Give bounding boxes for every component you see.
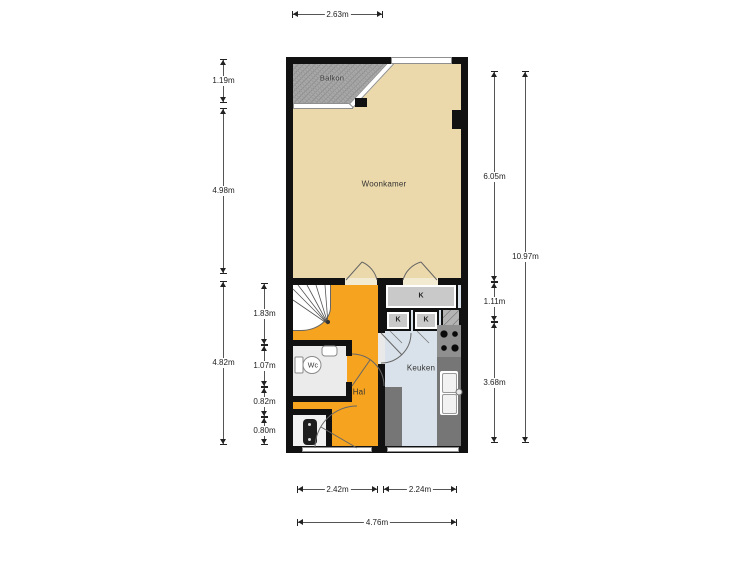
- dim-woonkamer-left-height-label: 4.98m: [210, 186, 236, 196]
- sink-basin-bottom: [442, 394, 457, 414]
- counter-left: [385, 387, 402, 446]
- dim-keuken-height-label: 3.68m: [481, 378, 507, 388]
- entrance-door-threshold: [302, 447, 372, 452]
- dim-total-width-label: 4.76m: [364, 518, 390, 528]
- dim-balkon-width: 2.63m: [292, 14, 383, 15]
- dim-meter-closet-height-label: 0.80m: [251, 426, 277, 436]
- dim-closet-row-height-label: 1.11m: [482, 297, 508, 307]
- meter-closet-wall-right: [326, 409, 332, 446]
- dim-hal-segment: 0.82m: [264, 387, 265, 417]
- dim-lower-left-height: 4.82m: [223, 281, 224, 445]
- label-closet-small-left: K: [395, 317, 400, 324]
- door-opening-keuken: [378, 333, 385, 364]
- floorplan-canvas: Balkon Woonkamer Hal Wc Keuken K K K 2.6…: [0, 0, 750, 563]
- label-woonkamer: Woonkamer: [362, 180, 407, 189]
- wc-wall-top: [291, 340, 352, 346]
- wc-wall-bottom: [291, 396, 352, 402]
- dim-keuken-width-label: 2.24m: [407, 485, 433, 495]
- label-hal: Hal: [353, 388, 366, 397]
- dim-total-height: 10.97m: [525, 71, 526, 443]
- dim-balkon-depth: 1.19m: [223, 59, 224, 103]
- label-keuken: Keuken: [407, 364, 435, 373]
- kitchen-sink-icon: [439, 370, 459, 416]
- dim-balkon-depth-label: 1.19m: [210, 76, 236, 86]
- dim-total-height-label: 10.97m: [510, 252, 541, 262]
- wall-left: [286, 57, 293, 453]
- dim-keuken-width: 2.24m: [383, 489, 457, 490]
- label-wc: Wc: [308, 363, 319, 370]
- balkon-window-bottom: [293, 103, 353, 109]
- balkon-corner-post: [355, 98, 367, 107]
- wall-top-right-corner: [452, 57, 468, 64]
- dim-wc-height: 1.07m: [264, 345, 265, 387]
- wall-pillar-right: [452, 110, 461, 129]
- woonkamer-window-top: [391, 57, 452, 64]
- label-closet-small-right: K: [423, 317, 428, 324]
- door-opening-woonkamer-left: [345, 278, 377, 285]
- wall-hal-keuken: [378, 285, 385, 446]
- dim-hal-segment-label: 0.82m: [251, 397, 277, 407]
- label-balkon: Balkon: [320, 74, 344, 83]
- wall-woonkamer-hal: [286, 278, 468, 285]
- dim-woonkamer-right-height-label: 6.05m: [481, 172, 507, 182]
- dim-wc-height-label: 1.07m: [251, 361, 277, 371]
- dim-balkon-width-label: 2.63m: [324, 10, 350, 20]
- boiler-icon: [303, 419, 317, 445]
- room-wc-floor: [293, 345, 347, 397]
- dim-keuken-height: 3.68m: [494, 322, 495, 443]
- dim-stairs-height: 1.83m: [264, 283, 265, 345]
- dim-total-width: 4.76m: [297, 522, 457, 523]
- dim-woonkamer-right-height: 6.05m: [494, 71, 495, 282]
- dim-hal-width-label: 2.42m: [324, 485, 350, 495]
- wc-wall-right-upper: [346, 340, 352, 356]
- keuken-window-bottom: [387, 447, 459, 452]
- door-opening-woonkamer-right: [403, 278, 438, 285]
- dim-meter-closet-height: 0.80m: [264, 417, 265, 445]
- dim-hal-width: 2.42m: [297, 489, 378, 490]
- dim-lower-left-height-label: 4.82m: [210, 358, 236, 368]
- sink-basin-top: [442, 373, 457, 393]
- dim-woonkamer-left-height: 4.98m: [223, 108, 224, 274]
- stove-icon: [437, 325, 461, 357]
- dim-closet-row-height: 1.11m: [494, 282, 495, 322]
- wall-top: [286, 57, 391, 64]
- label-closet-large: K: [418, 293, 423, 300]
- wall-right: [461, 57, 468, 453]
- dim-stairs-height-label: 1.83m: [251, 309, 277, 319]
